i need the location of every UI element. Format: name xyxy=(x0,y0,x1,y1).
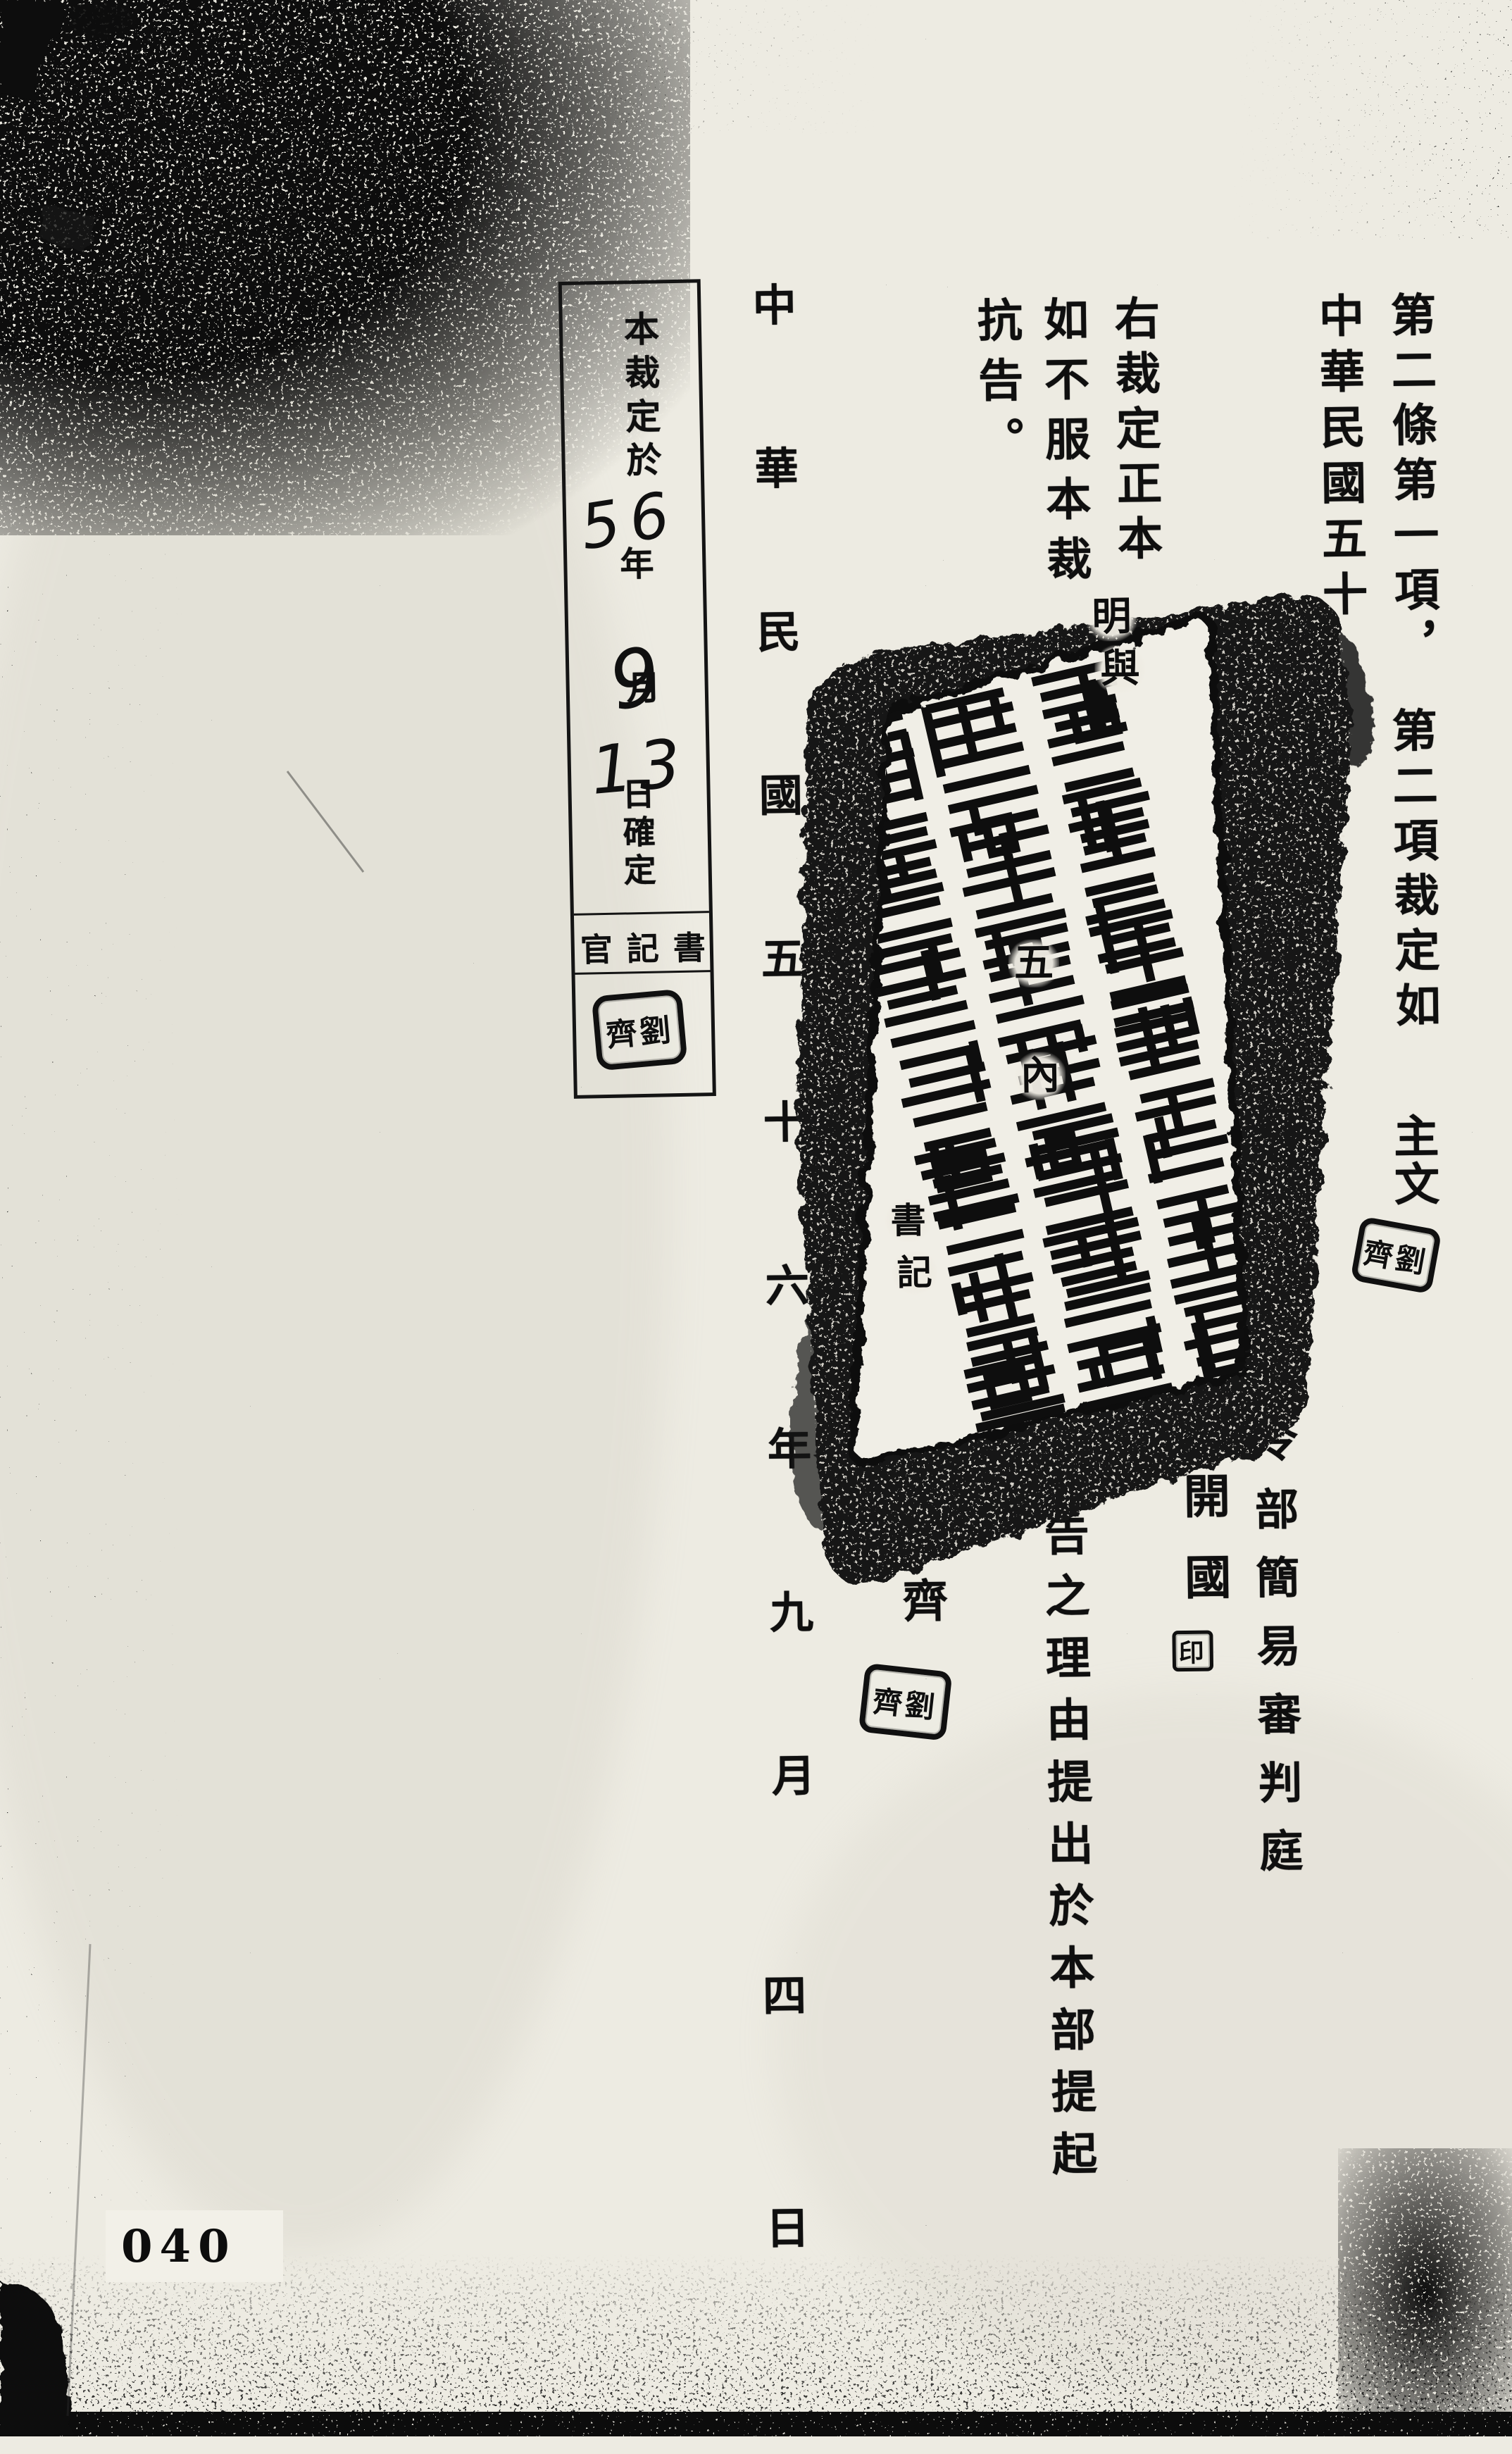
confirmation-clerk-seal: 齊劉 xyxy=(592,989,688,1071)
clerk-personal-seal: 齊劉 xyxy=(858,1663,953,1741)
year-label: 年 xyxy=(608,546,658,580)
seal-text: 齊劉 xyxy=(871,1677,940,1727)
scanned-legal-document-page: { "page": { "number": "040" }, "ruling":… xyxy=(0,0,1512,2436)
appeal-notice-end: 抗告。 xyxy=(963,297,1030,477)
page-number-label: 040 xyxy=(106,2210,283,2282)
official-stamp xyxy=(732,528,1423,1669)
day-suffix: 日確定 xyxy=(612,777,661,892)
clerk-row-rtl: 官記書 xyxy=(580,922,720,971)
month-label: 月 xyxy=(614,669,664,704)
seal-text: 齊劉 xyxy=(604,1004,675,1055)
confirmation-box: 本裁定於 56 年 9 月 13 日確定 官記書 齊劉 xyxy=(558,279,716,1099)
date-column-segment-2: 四日 xyxy=(748,1972,818,2438)
confirmation-heading: 本裁定於 xyxy=(613,310,667,485)
page-number: 040 xyxy=(121,2220,237,2273)
box-divider xyxy=(574,911,709,916)
